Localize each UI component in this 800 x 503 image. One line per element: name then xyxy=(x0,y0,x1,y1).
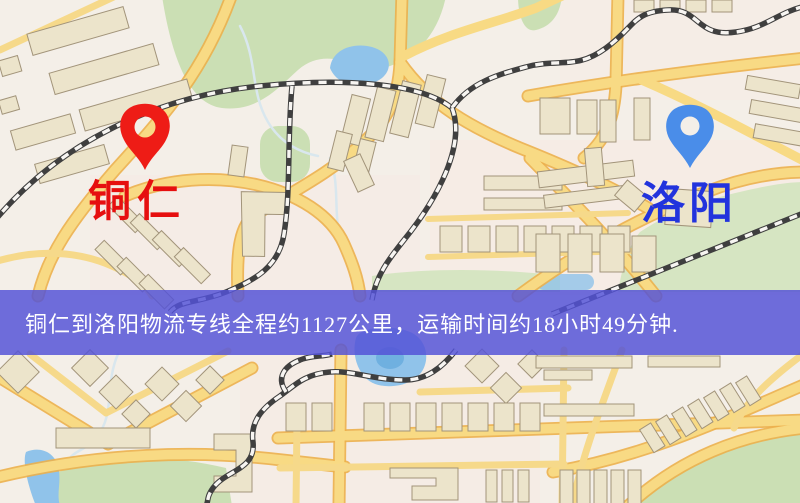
route-info-banner: 铜仁到洛阳物流专线全程约1127公里，运输时间约18小时49分钟. xyxy=(0,290,800,355)
logistics-route-map: 铜仁 洛阳 铜仁到洛阳物流专线全程约1127公里，运输时间约18小时49分钟. xyxy=(0,0,800,503)
origin-label: 铜仁 xyxy=(88,178,186,226)
map-canvas: 铜仁 洛阳 xyxy=(0,0,800,503)
destination-label: 洛阳 xyxy=(641,179,737,228)
route-info-text: 铜仁到洛阳物流专线全程约1127公里，运输时间约18小时49分钟. xyxy=(25,307,679,339)
